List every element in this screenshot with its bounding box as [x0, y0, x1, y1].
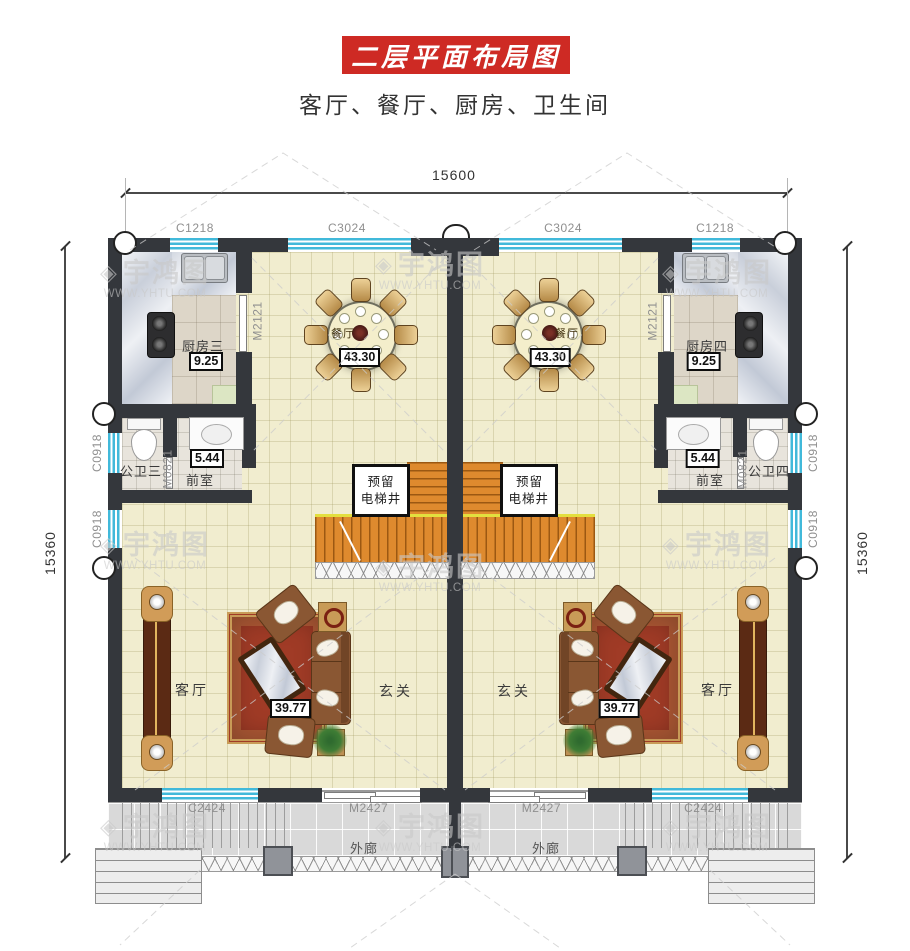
bath-bottom-wall — [658, 490, 802, 503]
living-label: 客厅 — [175, 680, 209, 700]
sofa-backrest — [341, 631, 349, 723]
window-code-c0918: C0918 — [90, 434, 104, 472]
kitchen-bath-wall — [658, 404, 802, 418]
living-area-chip: 39.77 — [599, 699, 640, 718]
vestibule-label: 前室 — [186, 470, 214, 489]
armchair — [594, 714, 646, 759]
sink-basin — [706, 256, 726, 280]
armchair — [264, 714, 316, 759]
plant-foliage — [563, 724, 597, 757]
dining-chair — [492, 325, 516, 345]
window-c2424 — [652, 788, 748, 802]
armchair-cushion — [607, 597, 640, 629]
kitchen-wall — [236, 252, 252, 293]
porch-railing — [453, 856, 715, 872]
vestibule-area-chip: 5.44 — [190, 449, 224, 468]
door-code-m2427: M2427 — [349, 801, 388, 815]
stair-railing — [315, 562, 449, 579]
unit-right: 预留 电梯井 — [455, 0, 910, 951]
window-c1218 — [692, 238, 740, 252]
plate — [355, 306, 366, 317]
kitchen-mat — [212, 385, 238, 406]
wall-segment — [622, 238, 692, 252]
plate — [521, 329, 532, 340]
window-c0918-bath — [788, 433, 802, 473]
living-label: 客厅 — [701, 680, 735, 700]
kitchen-area-chip: 9.25 — [189, 352, 223, 371]
porch-door-leaf — [324, 792, 376, 799]
porch-column-center — [451, 846, 469, 878]
wall-segment — [218, 238, 288, 252]
dining-chair — [394, 325, 418, 345]
porch-door-leaf — [534, 792, 586, 799]
porch-column — [617, 846, 647, 876]
burner — [152, 316, 167, 331]
floor-plan-page: 二层平面布局图 客厅、餐厅、厨房、卫生间 15600 15360 15360 — [0, 0, 910, 951]
window-code-c1218: C1218 — [696, 221, 734, 235]
window-code-c3024: C3024 — [544, 221, 582, 235]
window-code-c0918: C0918 — [806, 434, 820, 472]
plate — [371, 313, 382, 324]
stair-railing — [461, 562, 595, 579]
wall-segment — [108, 548, 122, 802]
sink-basin — [205, 256, 225, 280]
vanity-basin — [678, 424, 709, 445]
party-wall — [455, 252, 463, 802]
vanity-basin — [201, 424, 232, 445]
axis-marker — [794, 402, 818, 426]
kitchen-area-chip: 9.25 — [687, 352, 721, 371]
plate — [560, 313, 571, 324]
elevator-shaft: 预留 电梯井 — [352, 464, 410, 517]
wall-segment — [420, 788, 455, 802]
wall-segment — [455, 788, 490, 802]
kitchen-sliding-door — [663, 295, 671, 352]
tv-cabinet-trim — [753, 618, 755, 738]
sofa-seam — [568, 661, 599, 662]
door-code-m2121: M2121 — [251, 301, 265, 340]
door-code-m2427: M2427 — [522, 801, 561, 815]
axis-marker — [794, 556, 818, 580]
window-code-c3024: C3024 — [328, 221, 366, 235]
armchair-cushion — [270, 597, 303, 629]
porch-label: 外廊 — [350, 838, 378, 857]
window-c3024 — [288, 238, 411, 252]
dining-chair — [351, 278, 371, 302]
elevator-shaft: 预留 电梯井 — [500, 464, 558, 517]
vestibule-wall — [242, 404, 256, 468]
side-table-ornament — [324, 608, 344, 628]
dining-label: 餐厅 — [331, 325, 355, 341]
sink-basin — [184, 256, 204, 280]
porch-railing — [195, 856, 457, 872]
stair-upper-flight — [463, 462, 503, 517]
vestibule-area-chip: 5.44 — [686, 449, 720, 468]
plate — [528, 313, 539, 324]
entry-steps — [708, 848, 815, 904]
sofa-backrest — [561, 631, 569, 723]
door-code-m0821: M0821 — [735, 449, 749, 488]
bath-bottom-wall — [108, 490, 252, 503]
armchair-cushion — [605, 724, 633, 747]
plant-foliage — [313, 724, 347, 757]
wall-segment — [258, 788, 322, 802]
cabinet-knob — [745, 744, 761, 760]
wall-segment — [748, 788, 802, 802]
dining-chair — [539, 278, 559, 302]
cabinet-knob — [149, 744, 165, 760]
stair-lower-flight — [463, 517, 595, 562]
window-code-c2424: C2424 — [188, 801, 226, 815]
elevator-label-line2: 电梯井 — [361, 491, 402, 507]
axis-marker — [92, 402, 116, 426]
plate — [544, 306, 555, 317]
dining-chair — [304, 325, 328, 345]
elevator-label-line1: 预留 — [367, 474, 394, 490]
kitchen-wall — [236, 352, 252, 404]
kitchen-sliding-door — [239, 295, 247, 352]
kitchen-bath-wall — [108, 404, 252, 418]
dining-chair — [539, 368, 559, 392]
living-area-chip: 39.77 — [270, 699, 311, 718]
window-code-c0918: C0918 — [90, 510, 104, 548]
party-wall — [447, 252, 455, 802]
kitchen-mat — [672, 385, 698, 406]
bath-label: 公卫四 — [748, 461, 790, 480]
elevator-label-line1: 预留 — [516, 474, 543, 490]
window-c3024 — [499, 238, 622, 252]
window-code-c2424: C2424 — [684, 801, 722, 815]
stair-lower-flight — [315, 517, 447, 562]
window-c1218 — [170, 238, 218, 252]
dining-chair — [582, 325, 606, 345]
burner — [743, 316, 758, 331]
axis-marker — [113, 231, 137, 255]
wall-segment — [788, 548, 802, 802]
hall-label: 玄关 — [379, 681, 413, 701]
porch-column — [263, 846, 293, 876]
vestibule-label: 前室 — [696, 470, 724, 489]
cabinet-knob — [745, 594, 761, 610]
axis-marker — [773, 231, 797, 255]
wall-segment — [108, 788, 162, 802]
dining-area-chip: 43.30 — [530, 348, 571, 367]
porch-label: 外廊 — [532, 838, 560, 857]
armchair-cushion — [277, 724, 305, 747]
burner — [743, 337, 758, 352]
dining-label: 餐厅 — [555, 325, 579, 341]
dining-area-chip: 43.30 — [339, 348, 380, 367]
sofa-seam — [311, 661, 342, 662]
kitchen-wall — [658, 352, 674, 404]
hall-label: 玄关 — [497, 681, 531, 701]
window-code-c0918: C0918 — [806, 510, 820, 548]
stair-upper-flight — [407, 462, 447, 517]
wall-segment — [588, 788, 652, 802]
tv-cabinet-trim — [155, 618, 157, 738]
bath-label: 公卫三 — [120, 461, 162, 480]
dining-chair — [351, 368, 371, 392]
window-code-c1218: C1218 — [176, 221, 214, 235]
plate — [339, 313, 350, 324]
window-c2424 — [162, 788, 258, 802]
sink-basin — [685, 256, 705, 280]
window-c0918-living — [108, 510, 122, 548]
side-table-ornament — [566, 608, 586, 628]
tv-cabinet-body — [143, 603, 171, 755]
door-code-m0821: M0821 — [161, 449, 175, 488]
kitchen-wall — [658, 252, 674, 293]
burner — [152, 337, 167, 352]
elevator-label-line2: 电梯井 — [509, 491, 550, 507]
axis-marker — [92, 556, 116, 580]
cabinet-knob — [149, 594, 165, 610]
entry-steps — [95, 848, 202, 904]
party-wall-porch — [455, 802, 461, 848]
window-c0918-living — [788, 510, 802, 548]
unit-left: 预留 电梯井 — [0, 0, 455, 951]
plate — [378, 329, 389, 340]
door-code-m2121: M2121 — [645, 301, 659, 340]
